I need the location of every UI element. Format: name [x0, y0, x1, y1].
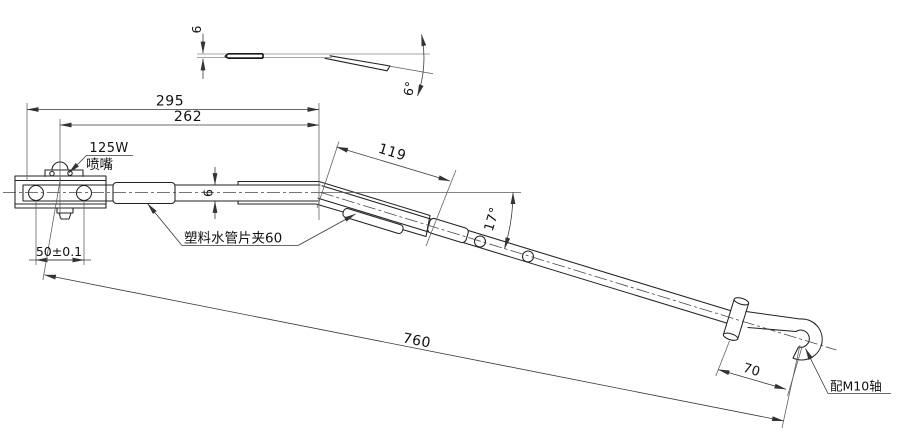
nozzle-spec-label: 125W [89, 141, 128, 156]
joint-sleeve [427, 217, 470, 243]
dimension-lines [27, 103, 891, 428]
tube-clip-2 [342, 208, 404, 235]
crimp-collar [723, 296, 750, 342]
overall-top-dim: 295 [156, 94, 184, 110]
centerline-bent [321, 193, 836, 351]
inner-top-dim: 262 [174, 109, 202, 125]
pivot-hole-left [29, 186, 44, 201]
pivot-hole-right [77, 186, 92, 201]
arm-straight-section [175, 182, 738, 326]
wiper-arm-technical-drawing: 6 6° 295 262 119 17° 6 50±0.1 760 70 125… [0, 0, 912, 440]
hole-spacing-dim: 50±0.1 [36, 244, 82, 259]
bend-angle-dim: 17° [482, 206, 503, 233]
bend-section-dim: 119 [376, 141, 408, 165]
arm-height-dim: 6 [201, 189, 216, 197]
tube-clip-1 [113, 183, 175, 204]
profile-view [197, 34, 433, 97]
clip-note-label: 塑料水管片夹60 [184, 231, 282, 247]
profile-thickness-dim: 6 [189, 25, 204, 33]
annotation-text: 125W 喷嘴 塑料水管片夹60 配M10轴 [86, 141, 882, 394]
front-view [3, 162, 836, 360]
rivet-hole-2 [523, 251, 534, 262]
profile-angle-dim: 6° [400, 80, 418, 97]
shaft-note-label: 配M10轴 [830, 379, 882, 394]
hook-end [746, 312, 822, 360]
total-length-dim: 760 [401, 330, 432, 351]
retaining-nut [57, 208, 73, 219]
drawing-canvas: 6 6° 295 262 119 17° 6 50±0.1 760 70 125… [0, 0, 912, 440]
nozzle-name-label: 喷嘴 [86, 157, 113, 173]
